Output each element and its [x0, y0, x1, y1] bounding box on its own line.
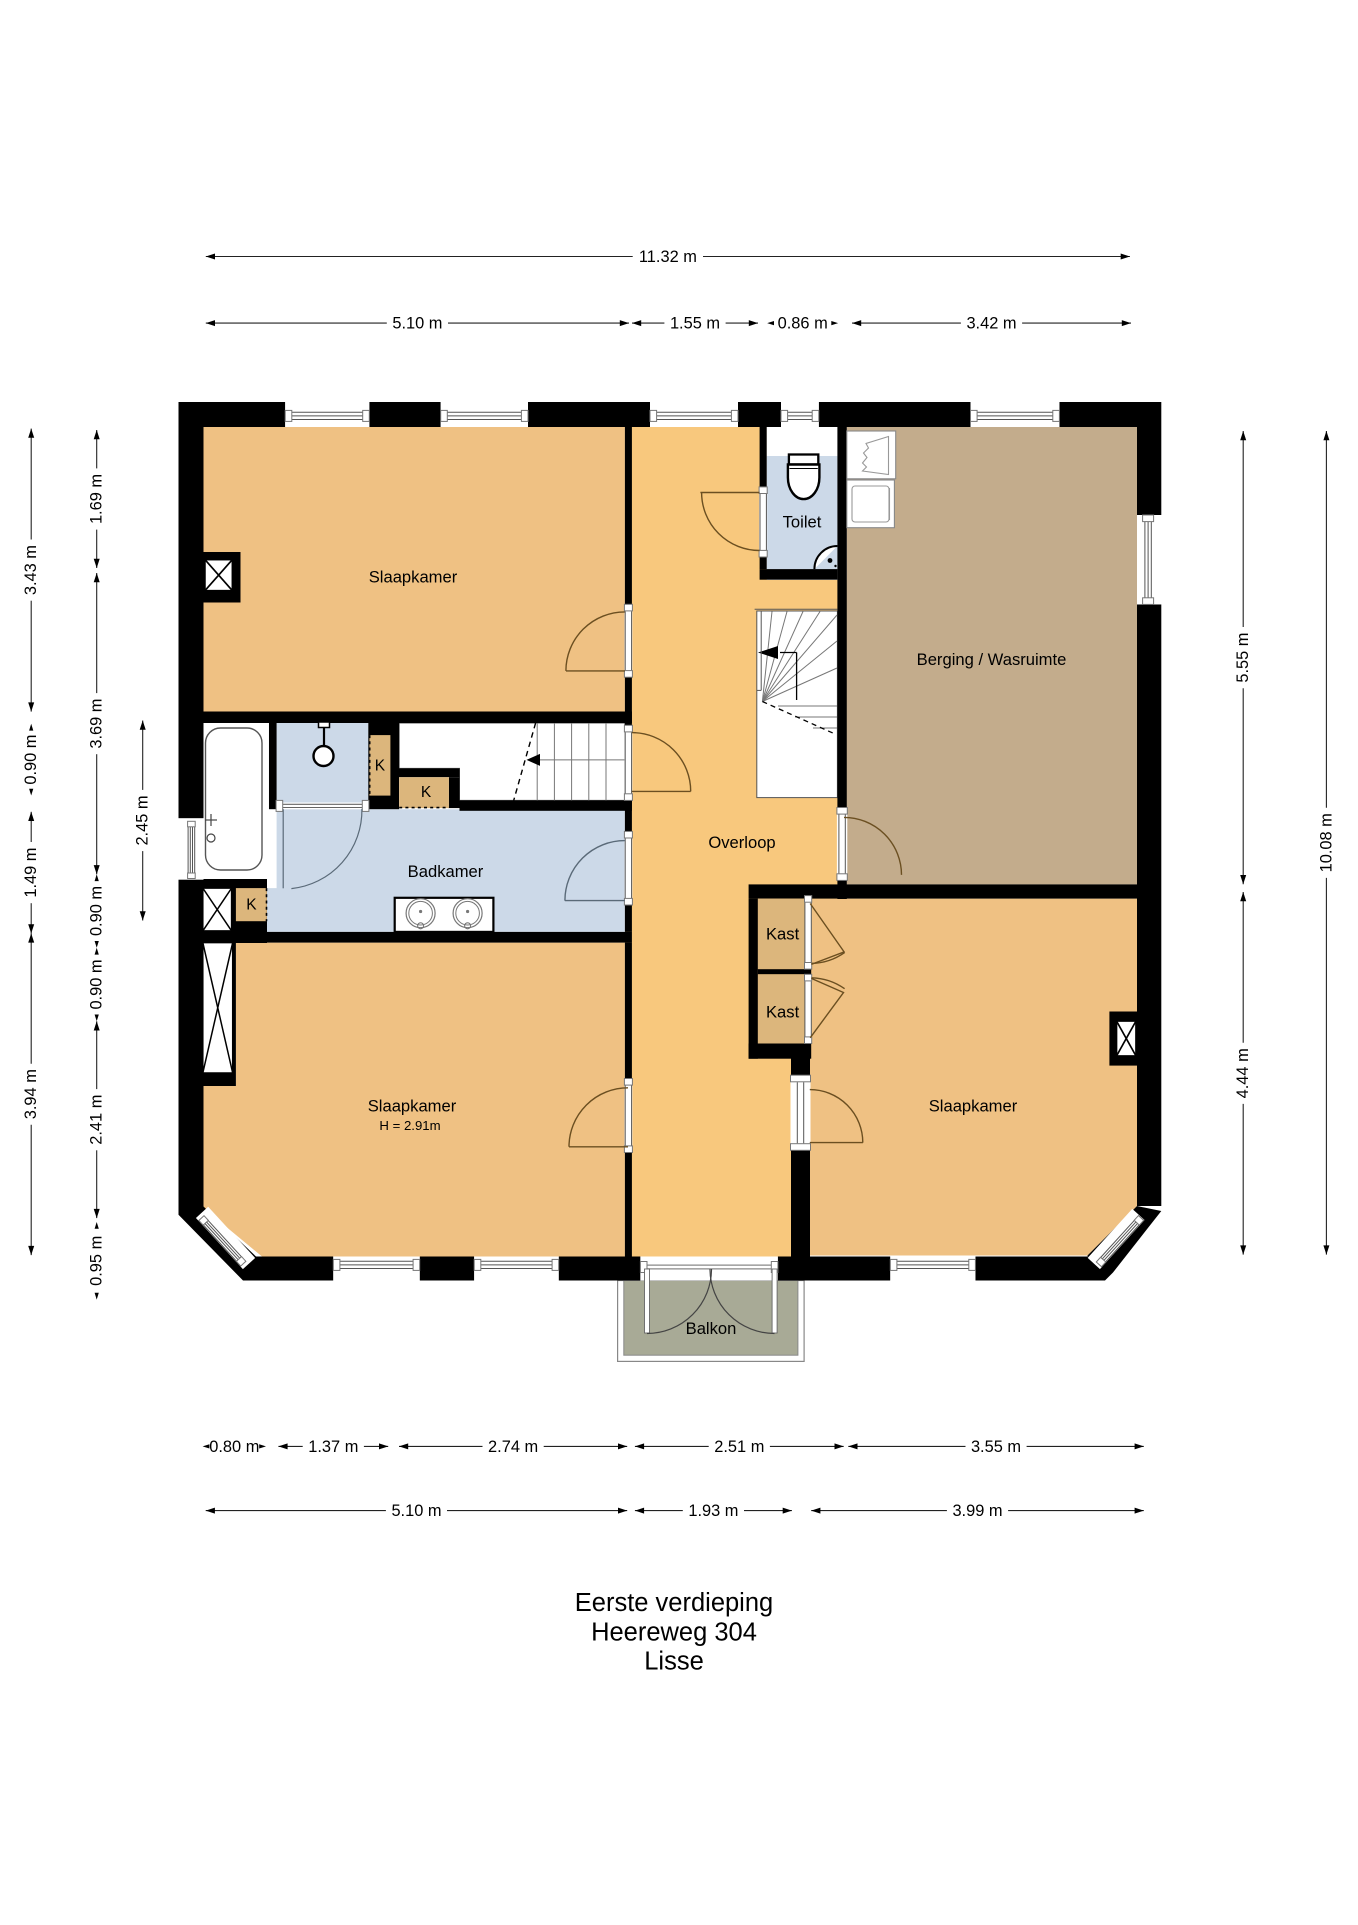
svg-text:3.99 m: 3.99 m [952, 1502, 1002, 1520]
svg-text:10.08 m: 10.08 m [1317, 813, 1335, 872]
svg-text:Slaapkamer: Slaapkamer [369, 568, 458, 587]
svg-text:3.94 m: 3.94 m [22, 1069, 40, 1119]
svg-text:Badkamer: Badkamer [408, 862, 484, 881]
svg-text:1.55 m: 1.55 m [670, 315, 720, 333]
svg-text:Eerste verdieping: Eerste verdieping [575, 1589, 773, 1617]
svg-text:3.43 m: 3.43 m [22, 545, 40, 595]
svg-text:Kast: Kast [766, 925, 800, 944]
svg-text:Lisse: Lisse [644, 1648, 704, 1676]
svg-text:0.90 m: 0.90 m [88, 886, 106, 936]
svg-text:K: K [421, 784, 432, 801]
svg-text:K: K [246, 897, 257, 914]
svg-text:Slaapkamer: Slaapkamer [929, 1097, 1018, 1116]
svg-text:0.86 m: 0.86 m [778, 315, 828, 333]
svg-text:H = 2.91m: H = 2.91m [379, 1118, 440, 1133]
svg-text:5.10 m: 5.10 m [391, 1502, 441, 1520]
svg-text:1.93 m: 1.93 m [688, 1502, 738, 1520]
svg-text:2.45 m: 2.45 m [134, 795, 152, 845]
svg-text:Slaapkamer: Slaapkamer [368, 1097, 457, 1116]
svg-text:3.55 m: 3.55 m [971, 1438, 1021, 1456]
svg-text:11.32 m: 11.32 m [639, 248, 697, 266]
svg-text:5.10 m: 5.10 m [392, 315, 442, 333]
svg-text:Balkon: Balkon [686, 1319, 737, 1338]
svg-text:Heereweg 304: Heereweg 304 [591, 1618, 757, 1646]
svg-text:1.37 m: 1.37 m [308, 1438, 358, 1456]
svg-text:3.42 m: 3.42 m [966, 315, 1016, 333]
svg-text:Kast: Kast [766, 1003, 800, 1022]
svg-text:1.69 m: 1.69 m [88, 474, 106, 524]
svg-text:0.90 m: 0.90 m [88, 959, 106, 1009]
svg-text:Berging / Wasruimte: Berging / Wasruimte [917, 650, 1067, 669]
svg-text:K: K [375, 758, 386, 775]
svg-text:2.51 m: 2.51 m [714, 1438, 764, 1456]
svg-text:1.49 m: 1.49 m [22, 848, 40, 898]
svg-text:3.69 m: 3.69 m [88, 699, 106, 749]
svg-text:0.80 m: 0.80 m [209, 1438, 259, 1456]
svg-text:Overloop: Overloop [708, 833, 775, 852]
svg-text:2.41 m: 2.41 m [88, 1095, 106, 1145]
svg-text:Toilet: Toilet [783, 513, 822, 532]
svg-text:0.95 m: 0.95 m [88, 1236, 106, 1286]
svg-text:5.55 m: 5.55 m [1234, 633, 1252, 683]
svg-text:0.90 m: 0.90 m [22, 735, 40, 785]
svg-text:4.44 m: 4.44 m [1234, 1048, 1252, 1098]
svg-text:2.74 m: 2.74 m [488, 1438, 538, 1456]
